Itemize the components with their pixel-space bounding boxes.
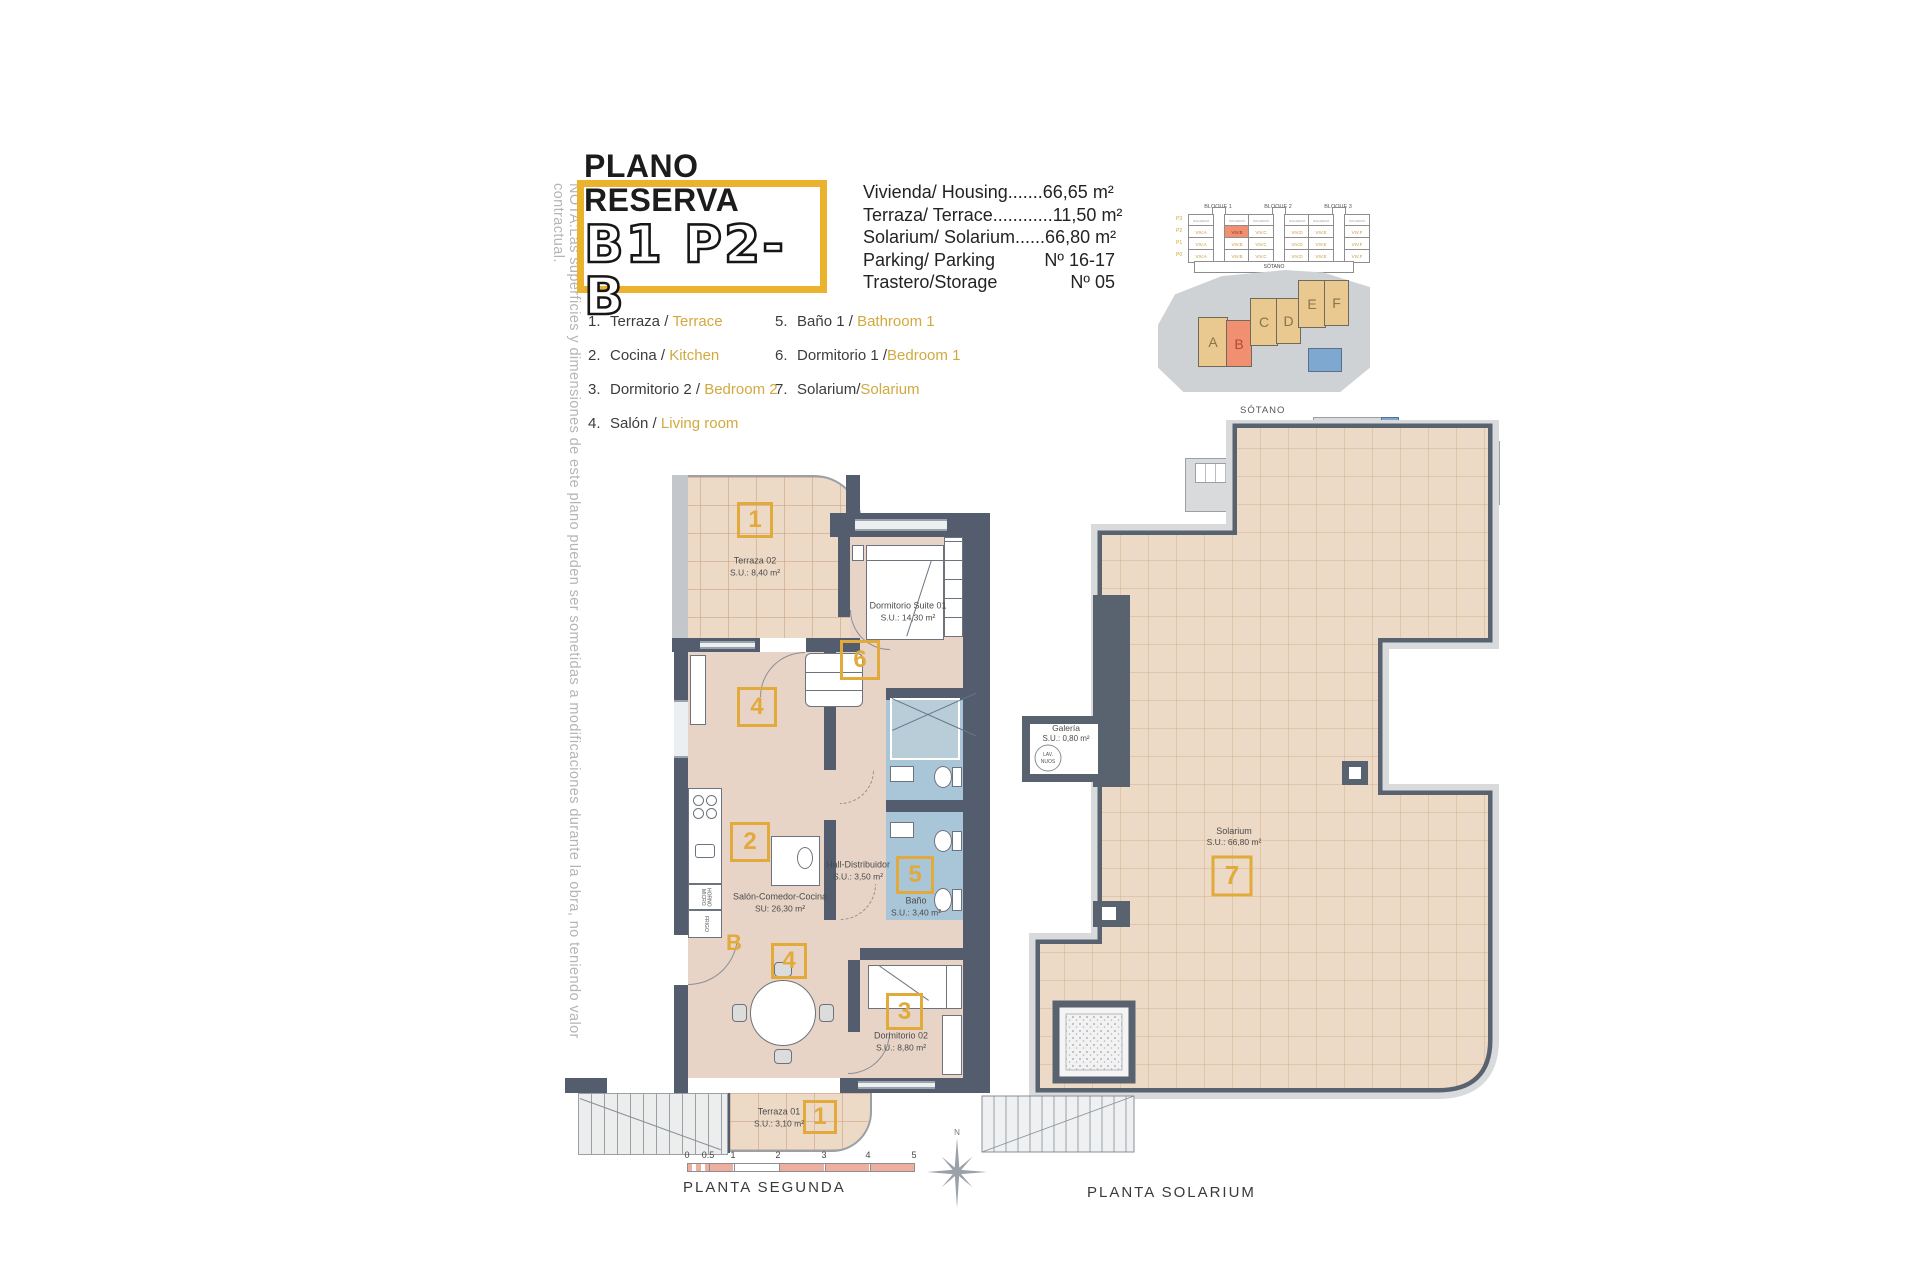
site-unit-c: C <box>1250 298 1278 346</box>
floor-label: P3 <box>1176 216 1182 222</box>
scale-tick: 4 <box>865 1150 870 1160</box>
dorm2-closet <box>942 1015 962 1075</box>
compass-rose: N <box>922 1126 992 1210</box>
dining-table <box>750 980 816 1046</box>
bath2-sink <box>890 822 914 838</box>
room-marker-bano: 5 <box>896 856 934 894</box>
legend-item: 1.Terraza / Terrace <box>588 313 778 330</box>
wall <box>848 960 860 1032</box>
site-unit-f: F <box>1324 280 1349 326</box>
washer-icon <box>1035 745 1061 771</box>
toilet-tank <box>952 889 962 911</box>
room-label-suite: Dormitorio Suite 01S.U.: 14,30 m² <box>869 601 946 624</box>
terraza2-parapet <box>672 475 688 645</box>
scale-tick: 0 <box>684 1150 689 1160</box>
room-marker-terraza1: 1 <box>803 1100 837 1134</box>
unit-specs: Vivienda/ Housing.......66,65 m² Terraza… <box>863 181 1115 294</box>
room-marker-terraza2: 1 <box>737 502 773 538</box>
floor-label: P0 <box>1176 252 1182 258</box>
scale-tick: 5 <box>911 1150 916 1160</box>
floor-plan-sheet: NOTA:Las superficies y dimensiones de es… <box>0 0 1920 1280</box>
kitchen-window <box>674 700 688 758</box>
wall <box>674 985 688 1093</box>
room-marker-solarium: 7 <box>1225 860 1239 890</box>
wall <box>674 645 688 935</box>
wall <box>846 475 860 515</box>
planta-solarium-label: PLANTA SOLARIUM <box>1087 1184 1256 1201</box>
building-elevation-key: BLOQUE 1 BLOQUE 2 BLOQUE 3 P3 P2 P1 P0 S… <box>1176 200 1376 278</box>
spec-parking-label: Parking/ Parking <box>863 249 995 272</box>
legend-item: 5.Baño 1 / Bathroom 1 <box>775 313 960 330</box>
appliance-label: HORNO MICRO <box>700 885 711 909</box>
spec-housing: Vivienda/ Housing.......66,65 m² <box>863 181 1115 204</box>
floor-label: P2 <box>1176 228 1182 234</box>
legend-item: 3.Dormitorio 2 / Bedroom 2 <box>588 381 778 398</box>
solarium-staircase <box>982 1096 1134 1152</box>
washer-label: NUOS <box>1041 759 1056 765</box>
wall <box>860 948 963 960</box>
spec-parking: Parking/ Parking Nº 16-17 <box>863 249 1115 272</box>
spec-storage-value: Nº 05 <box>1070 271 1115 294</box>
site-unit-e: E <box>1298 280 1326 328</box>
room-label-salon: Salón-Comedor-CocinaSU: 26,30 m² <box>733 892 827 915</box>
solarium-label: Solarium <box>1216 826 1252 836</box>
north-label: N <box>954 1128 960 1137</box>
planta-segunda-plan: HORNO MICRO FRIGO <box>560 470 1010 1190</box>
toilet-tank <box>952 831 962 851</box>
chair <box>819 1004 834 1022</box>
planta-solarium-plan: LAV. NUOS Galería S.U.: 0,80 m² Solarium… <box>980 420 1510 1180</box>
legend-item: 2.Cocina / Kitchen <box>588 347 778 364</box>
tv-cabinet <box>690 655 706 725</box>
site-key-plan: A B C D E F <box>1158 270 1373 395</box>
kitchen-counter <box>688 788 722 884</box>
wall <box>565 1078 607 1093</box>
galeria-area: S.U.: 0,80 m² <box>1042 734 1089 743</box>
nightstand <box>852 545 864 561</box>
living-window <box>700 641 755 649</box>
legend-item: 6.Dormitorio 1 /Bedroom 1 <box>775 347 960 364</box>
terrace-door-opening <box>760 638 806 652</box>
suite-window <box>855 519 947 531</box>
chair <box>774 1049 792 1064</box>
site-unit-b-highlighted: B <box>1226 320 1252 367</box>
title-box: PLANO RESERVA B1 P2-B <box>577 180 827 293</box>
scale-bar-strip <box>687 1163 915 1172</box>
scale-tick: 2 <box>775 1150 780 1160</box>
room-marker-salon-bottom: 4 <box>771 943 807 979</box>
wall <box>886 800 963 812</box>
legend-col2: 5.Baño 1 / Bathroom 1 6.Dormitorio 1 /Be… <box>775 313 960 415</box>
fridge: FRIGO <box>688 910 722 938</box>
kitchen-island <box>771 836 820 886</box>
plan-title: PLANO RESERVA <box>584 150 820 217</box>
planta-segunda-label: PLANTA SEGUNDA <box>683 1179 846 1196</box>
room-label-bano: BañoS.U.: 3,40 m² <box>891 896 941 919</box>
toilet <box>934 766 952 788</box>
legend-item: 7.Solarium/Solarium <box>775 381 960 398</box>
room-label-hall: Hall-DistribuidorS.U.: 3,50 m² <box>826 860 890 883</box>
washer-label: LAV. <box>1043 752 1053 758</box>
legend-col1: 1.Terraza / Terrace 2.Cocina / Kitchen 3… <box>588 313 778 449</box>
spec-storage-label: Trastero/Storage <box>863 271 997 294</box>
basement-label: SÓTANO <box>1240 405 1285 416</box>
planter-gravel <box>1066 1014 1122 1070</box>
room-marker-suite: 6 <box>840 640 880 680</box>
wall <box>838 537 850 617</box>
compass-star <box>926 1138 988 1208</box>
spec-solarium: Solarium/ Solarium......66,80 m² <box>863 226 1115 249</box>
shower <box>890 698 960 760</box>
galeria-label: Galería <box>1052 723 1080 733</box>
room-label-dorm2: Dormitorio 02S.U.: 8,80 m² <box>874 1031 928 1054</box>
bath1-sink <box>890 766 914 782</box>
toilet-tank <box>952 767 962 787</box>
chair <box>732 1004 747 1022</box>
toilet <box>934 830 952 852</box>
spec-terrace: Terraza/ Terrace............11,50 m² <box>863 204 1115 227</box>
room-marker-salon-top: 4 <box>737 687 777 727</box>
scale-tick: 3 <box>821 1150 826 1160</box>
vent-shaft-inner <box>1349 767 1361 779</box>
unit-code: B1 P2-B <box>584 219 820 323</box>
room-label-terraza1: Terraza 01S.U.: 3,10 m² <box>754 1107 804 1130</box>
solarium-area: S.U.: 66,80 m² <box>1207 837 1262 847</box>
oven-microwave: HORNO MICRO <box>688 884 722 910</box>
room-marker-cocina: 2 <box>730 822 770 862</box>
room-marker-dorm2: 3 <box>886 993 923 1030</box>
pool-icon <box>1308 348 1342 372</box>
site-unit-a: A <box>1198 317 1228 367</box>
spec-parking-value: Nº 16-17 <box>1044 249 1115 272</box>
dorm2-window <box>858 1081 935 1089</box>
scale-tick: 0.5 <box>702 1150 715 1160</box>
vent-shaft-inner <box>1102 907 1116 920</box>
scale-bar: 0 0.5 1 2 3 4 5 <box>683 1150 923 1176</box>
floor-label: P1 <box>1176 240 1182 246</box>
legend-item: 4.Salón / Living room <box>588 415 778 432</box>
entrance-unit-letter: B <box>726 930 742 956</box>
scale-tick: 1 <box>730 1150 735 1160</box>
appliance-label: FRIGO <box>702 916 708 932</box>
room-label-terraza2: Terraza 02S.U.: 8,40 m² <box>730 556 780 579</box>
spec-storage: Trastero/Storage Nº 05 <box>863 271 1115 294</box>
wardrobe <box>944 537 963 637</box>
